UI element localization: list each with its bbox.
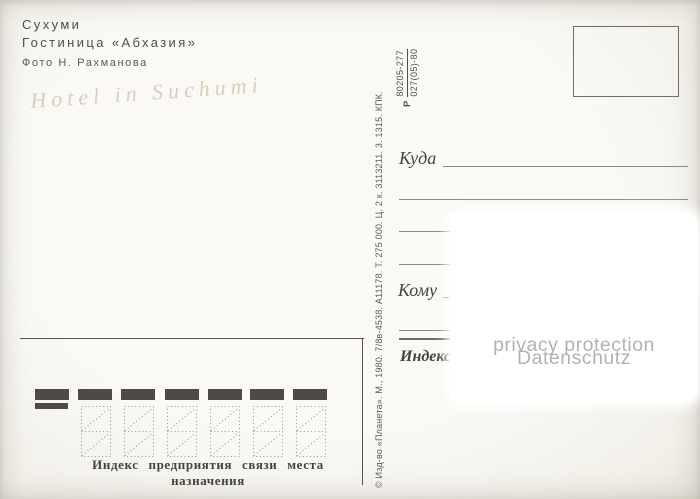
digit-stencil-icon: [209, 405, 241, 458]
digit-stencil-icon: [252, 405, 284, 458]
handwritten-note: Hotel in Suchumi: [29, 68, 320, 114]
index-mark-box: [78, 389, 112, 400]
index-mark-box: [250, 389, 284, 400]
city-title: Сухуми: [22, 16, 197, 34]
digit-stencil-icon: [295, 405, 327, 458]
index-mark-box: [293, 389, 327, 400]
publisher-imprint: © Изд-во «Планета». М., 1980. 7/8в-4538.…: [374, 18, 384, 488]
digit-stencil-icon: [80, 405, 112, 458]
index-mark-box: [121, 389, 155, 400]
privacy-overlay: privacy protection Datenschutz: [450, 212, 698, 403]
photo-credit: Фото Н. Рахманова: [22, 56, 197, 71]
postcard-back: Сухуми Гостиница «Абхазия» Фото Н. Рахма…: [0, 0, 700, 499]
stamp-box: [573, 26, 679, 97]
privacy-text-line2: Datenschutz: [450, 349, 698, 369]
address-line-1: [399, 199, 688, 200]
catalog-prefix: Р: [402, 101, 413, 107]
catalog-fraction: 80205-277 027(05)-80: [395, 49, 420, 97]
catalog-number: Р 80205-277 027(05)-80: [395, 13, 420, 107]
index-mark-box: [165, 389, 199, 400]
index-zone-frame-top: [20, 338, 364, 339]
address-line-to: [443, 166, 688, 167]
index-mark-bar: [35, 403, 68, 409]
title-block: Сухуми Гостиница «Абхазия» Фото Н. Рахма…: [22, 16, 197, 71]
catalog-numerator: 80205-277: [395, 49, 408, 97]
catalog-denominator: 027(05)-80: [408, 49, 420, 97]
index-label: Индекс: [400, 348, 451, 366]
subject-title: Гостиница «Абхазия»: [22, 34, 197, 52]
digit-stencil-icon: [123, 405, 155, 458]
privacy-text: privacy protection Datenschutz: [450, 212, 698, 368]
index-zone-caption: Индекс предприятия связи места назначени…: [52, 457, 364, 489]
index-mark-box: [35, 389, 69, 400]
recipient-label: Кому: [398, 280, 437, 301]
index-mark-box: [208, 389, 242, 400]
digit-stencil-icon: [166, 405, 198, 458]
to-label: Куда: [399, 148, 436, 169]
